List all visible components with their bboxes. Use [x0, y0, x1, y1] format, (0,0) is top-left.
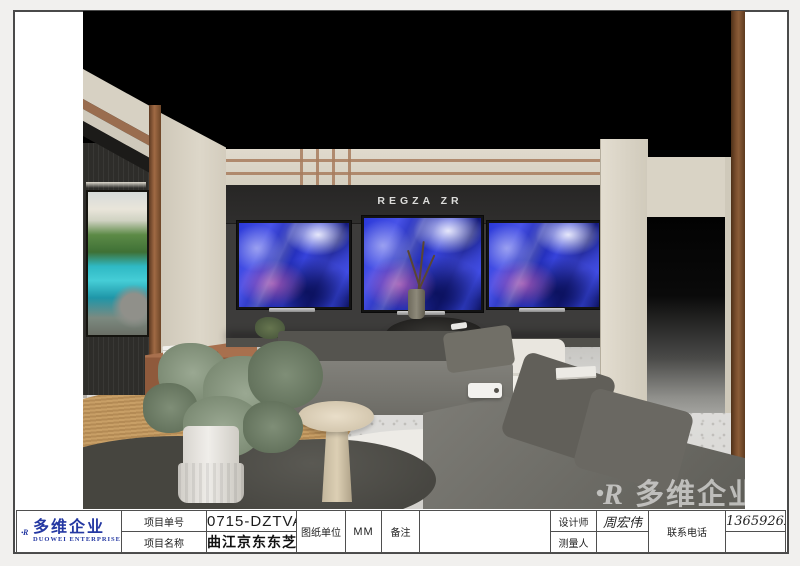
drawing-unit-value: MM: [346, 511, 382, 553]
remark-value: [420, 511, 551, 553]
dried-branch-vase: [408, 289, 425, 319]
design-sheet: { "title_block": { "logo": { "company_cn…: [0, 0, 800, 566]
project-name-value: 曲江京东东芝电视: [207, 532, 297, 553]
tv-stand-1: [269, 308, 315, 312]
phone-value-empty: [726, 532, 786, 553]
project-no-label: 项目单号: [122, 511, 207, 532]
company-logo-cell: R 多维企业 DUOWEI ENTERPRISE: [17, 511, 122, 553]
side-table-pedestal: [322, 426, 352, 502]
remark-label: 备注: [382, 511, 420, 553]
svg-text:R: R: [602, 478, 623, 509]
plant-foliage: [248, 341, 323, 409]
regza-sign: REGZA ZR: [226, 195, 614, 207]
designer-label: 设计师: [551, 511, 597, 532]
plant-foliage: [243, 401, 303, 453]
magazine: [556, 366, 597, 380]
interior-render: REGZA ZR R: [83, 11, 745, 509]
drawing-unit-label: 图纸单位: [297, 511, 346, 553]
right-return-wall: [600, 139, 648, 413]
surveyor-label: 测量人: [551, 532, 597, 553]
project-name-label: 项目名称: [122, 532, 207, 553]
watermark-logo-icon: R: [595, 474, 633, 509]
tv-screen-3: [487, 221, 601, 309]
copper-trim-strip: [149, 105, 161, 357]
company-logo-icon: R: [21, 518, 31, 546]
doorway-opening: [647, 217, 725, 413]
company-name-cn: 多维企业: [33, 520, 105, 536]
surveyor-value: [597, 532, 649, 553]
projector-device: [468, 383, 502, 398]
phone-value: 13659262305: [726, 511, 786, 532]
svg-text:R: R: [22, 528, 29, 537]
cove-light: [86, 182, 146, 188]
company-name-en: DUOWEI ENTERPRISE: [33, 537, 121, 544]
plant-vase-neck: [183, 426, 239, 468]
title-block-table: R 多维企业 DUOWEI ENTERPRISE 项目单号 0715-DZTVA…: [16, 510, 786, 553]
tv-stand-3: [519, 308, 565, 312]
watermark: R 多维企业: [595, 471, 745, 509]
doorway-header: [647, 157, 725, 219]
wood-pillar: [731, 11, 745, 509]
project-no-value: 0715-DZTVA: [207, 511, 297, 532]
tv-screen-1: [237, 221, 351, 309]
designer-value: 周宏伟: [597, 511, 649, 532]
plant-vase-fluted-base: [178, 463, 244, 503]
side-table-top: [298, 401, 374, 432]
cream-cornice: [226, 149, 614, 185]
beige-column: [161, 113, 226, 359]
watermark-text: 多维企业: [635, 471, 745, 509]
phone-label: 联系电话: [649, 511, 726, 553]
left-tv-lake-screen: [86, 190, 149, 337]
